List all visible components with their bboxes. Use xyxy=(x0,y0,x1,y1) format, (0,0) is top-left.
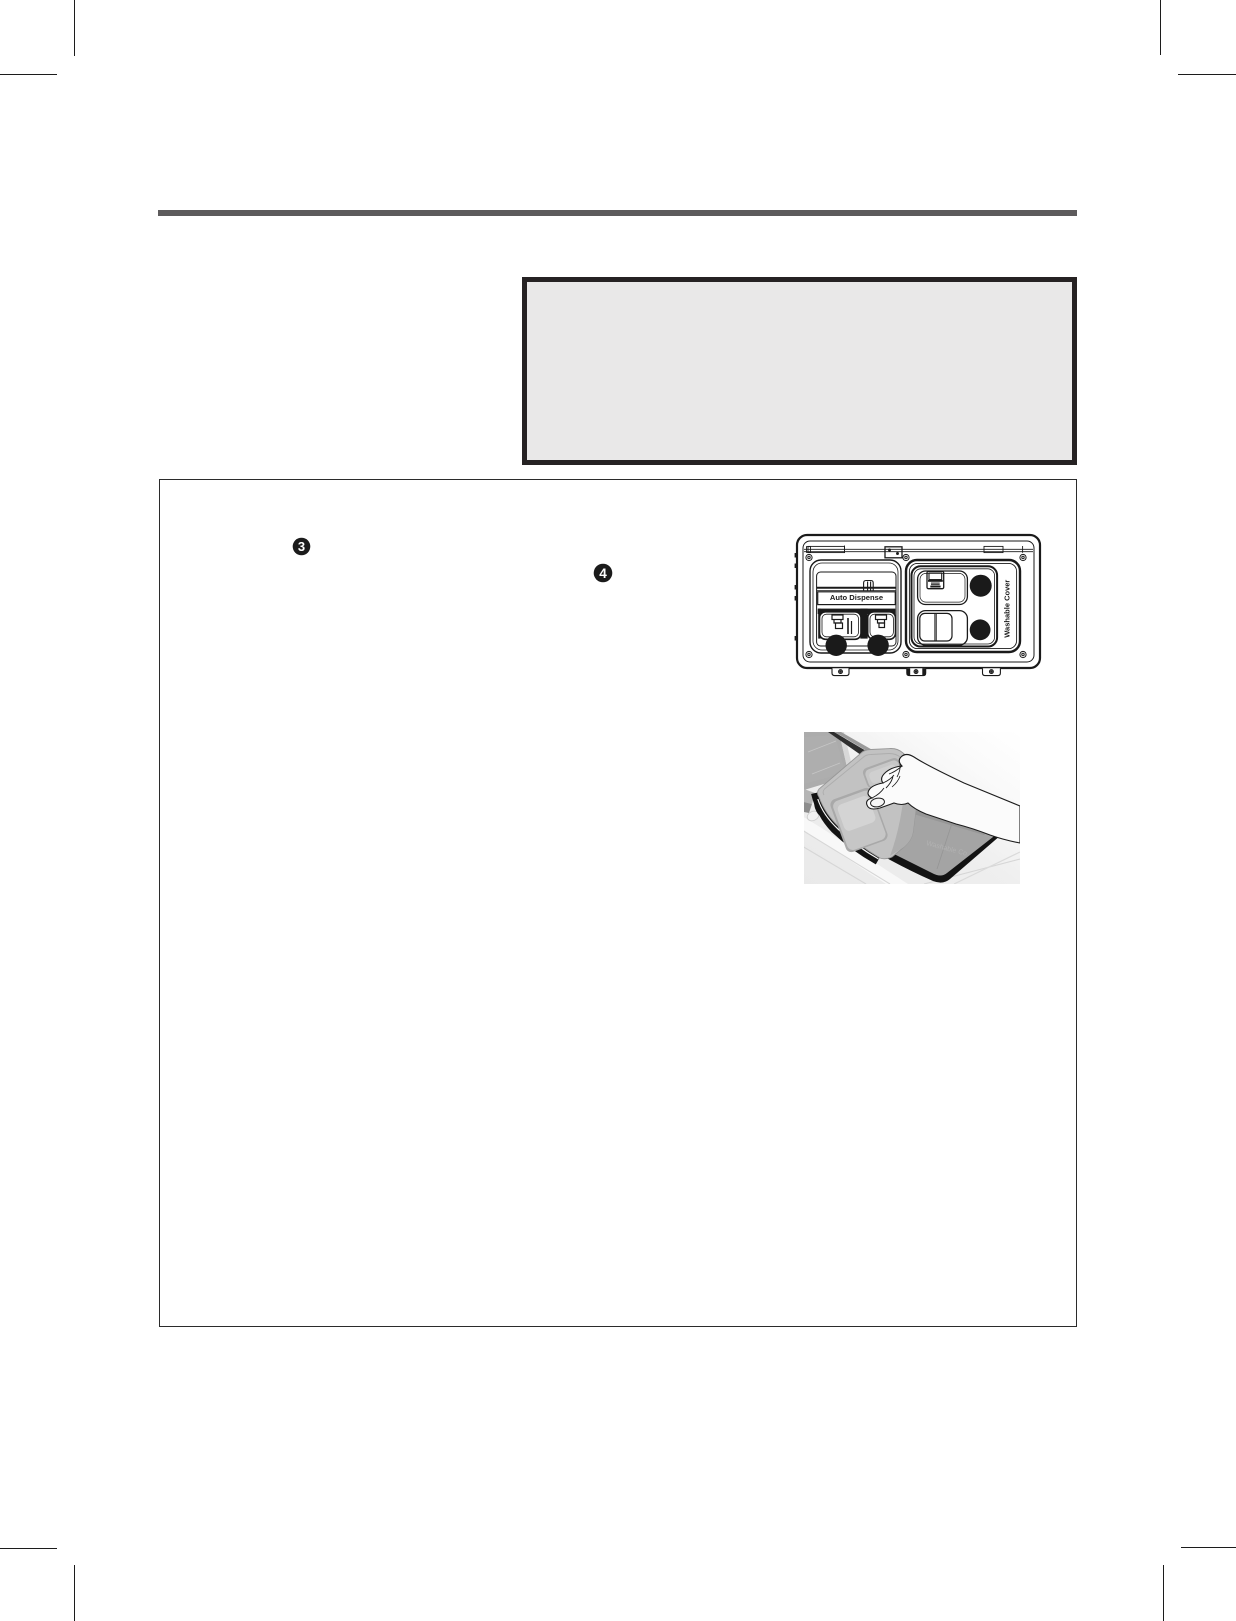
svg-text:Washable Cover: Washable Cover xyxy=(1003,580,1012,638)
svg-text:Auto Dispense: Auto Dispense xyxy=(830,593,883,602)
svg-text:3: 3 xyxy=(298,539,305,554)
svg-text:4: 4 xyxy=(599,566,607,581)
